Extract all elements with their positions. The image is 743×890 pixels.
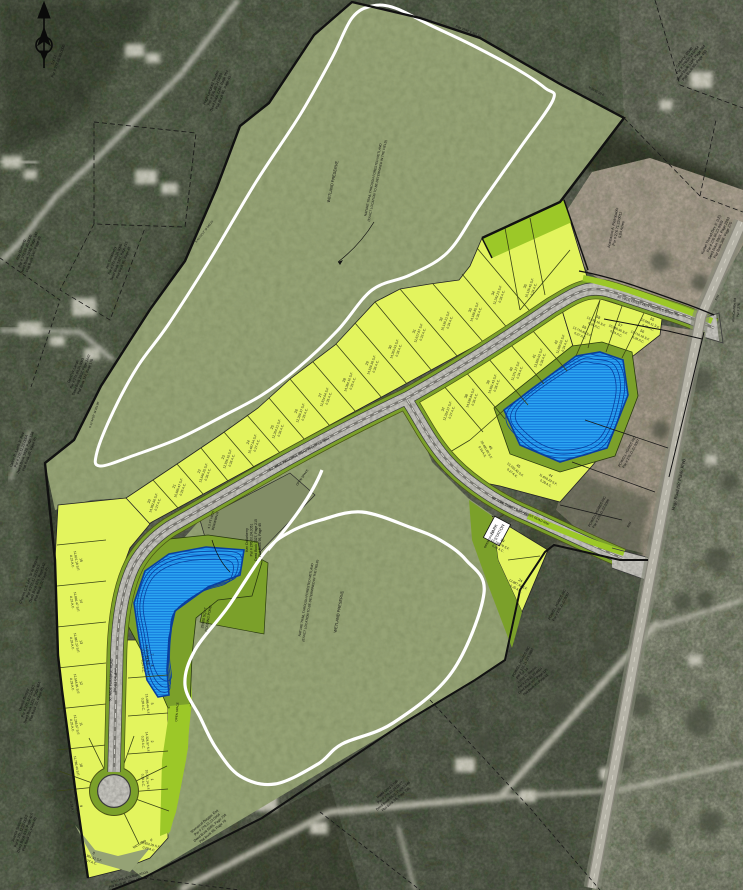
svg-text:Plat Book 95, Page 45: Plat Book 95, Page 45: [258, 523, 262, 557]
svg-text:Par # 276.00.24.0051: Par # 276.00.24.0051: [249, 524, 253, 557]
svg-text:Deed Book 1327, Page 215: Deed Book 1327, Page 215: [254, 519, 258, 561]
svg-text:Ken Dollarberry: Ken Dollarberry: [245, 528, 249, 552]
